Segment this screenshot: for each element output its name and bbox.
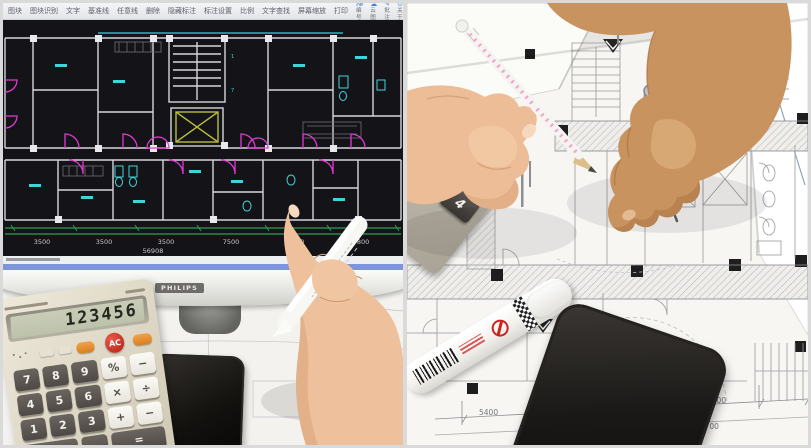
- calc-key-7[interactable]: 7: [13, 368, 41, 392]
- cad-menubar: 图块图块识别文字基准线任意线删除隐藏标注标注设置比例文字查找屏幕缩放打印 №编号…: [3, 3, 403, 20]
- photo-right-blueprint-desk: 5400 9000 30700 0014: [407, 3, 808, 445]
- calc-key-%[interactable]: %: [100, 355, 128, 379]
- calc-key-÷[interactable]: ÷: [132, 376, 160, 400]
- calculator-keys: 789%−456×÷123+−00.=: [13, 351, 167, 445]
- calc-orange-key[interactable]: [132, 332, 152, 346]
- hands-overlay: [407, 3, 808, 303]
- menu-item[interactable]: 标注设置: [204, 6, 232, 16]
- calc-key-2[interactable]: 2: [49, 413, 77, 437]
- calc-key-8[interactable]: 8: [42, 364, 70, 388]
- calc-key-6[interactable]: 6: [74, 384, 102, 408]
- menu-item[interactable]: 打印: [334, 6, 348, 16]
- calc-key-−[interactable]: −: [129, 351, 157, 375]
- calc-ac-key[interactable]: AC: [104, 332, 125, 354]
- calc-key-4[interactable]: 4: [17, 392, 45, 416]
- calc-key-9[interactable]: 9: [71, 360, 99, 384]
- toolbar-edit[interactable]: ✎批注: [384, 3, 390, 21]
- svg-text:3500: 3500: [158, 238, 175, 246]
- menu-item[interactable]: 基准线: [88, 6, 109, 16]
- svg-text:56908: 56908: [143, 247, 164, 255]
- toolbar-icons-group: №编号☁云图✎批注⊙关于▤资料: [356, 3, 403, 21]
- marker-label-text: [458, 333, 485, 354]
- hand-with-pen: [256, 151, 403, 445]
- calc-key-5[interactable]: 5: [45, 388, 73, 412]
- svg-text:3500: 3500: [96, 238, 113, 246]
- calc-key-×[interactable]: ×: [103, 380, 131, 404]
- calc-key-1[interactable]: 1: [20, 417, 48, 441]
- calc-key-.[interactable]: .: [81, 434, 110, 445]
- menu-item[interactable]: 隐藏标注: [168, 6, 196, 16]
- calc-orange-key[interactable]: [75, 340, 95, 354]
- photo-collage: 图块图块识别文字基准线任意线删除隐藏标注标注设置比例文字查找屏幕缩放打印 №编号…: [0, 0, 811, 448]
- calculator: 123456 AC 789%−456×÷123+−00.=: [3, 278, 176, 445]
- menu-item[interactable]: 屏幕缩放: [298, 6, 326, 16]
- menu-item[interactable]: 任意线: [117, 6, 138, 16]
- calc-key-−[interactable]: −: [136, 401, 164, 425]
- marker-logo: [489, 316, 512, 339]
- calc-small-key[interactable]: [58, 345, 72, 354]
- svg-text:1: 1: [231, 54, 234, 60]
- calc-small-key[interactable]: [40, 348, 54, 357]
- menu-item[interactable]: 图块识别: [30, 6, 58, 16]
- svg-text:7500: 7500: [223, 238, 240, 246]
- svg-text:7: 7: [231, 88, 234, 94]
- toolbar-cloud[interactable]: ☁云图: [370, 3, 377, 21]
- svg-text:5400: 5400: [479, 408, 498, 417]
- menu-item[interactable]: 图块: [8, 6, 22, 16]
- monitor-brand-logo: PHILIPS: [155, 283, 204, 293]
- menu-items-group: 图块图块识别文字基准线任意线删除隐藏标注标注设置比例文字查找屏幕缩放打印: [8, 6, 348, 16]
- photo-left-cad-workstation: 图块图块识别文字基准线任意线删除隐藏标注标注设置比例文字查找屏幕缩放打印 №编号…: [3, 3, 403, 445]
- menu-item[interactable]: 文字查找: [262, 6, 290, 16]
- calc-key-3[interactable]: 3: [78, 409, 106, 433]
- toolbar-about[interactable]: ⊙关于: [397, 3, 403, 21]
- calc-key-=[interactable]: =: [111, 426, 167, 445]
- menu-item[interactable]: 文字: [66, 6, 80, 16]
- toolbar-number[interactable]: №编号: [356, 3, 363, 21]
- calc-key-+[interactable]: +: [107, 405, 135, 429]
- speaker-dots: [11, 350, 36, 361]
- svg-text:3500: 3500: [34, 238, 51, 246]
- menu-item[interactable]: 比例: [240, 6, 254, 16]
- menu-item[interactable]: 删除: [146, 6, 160, 16]
